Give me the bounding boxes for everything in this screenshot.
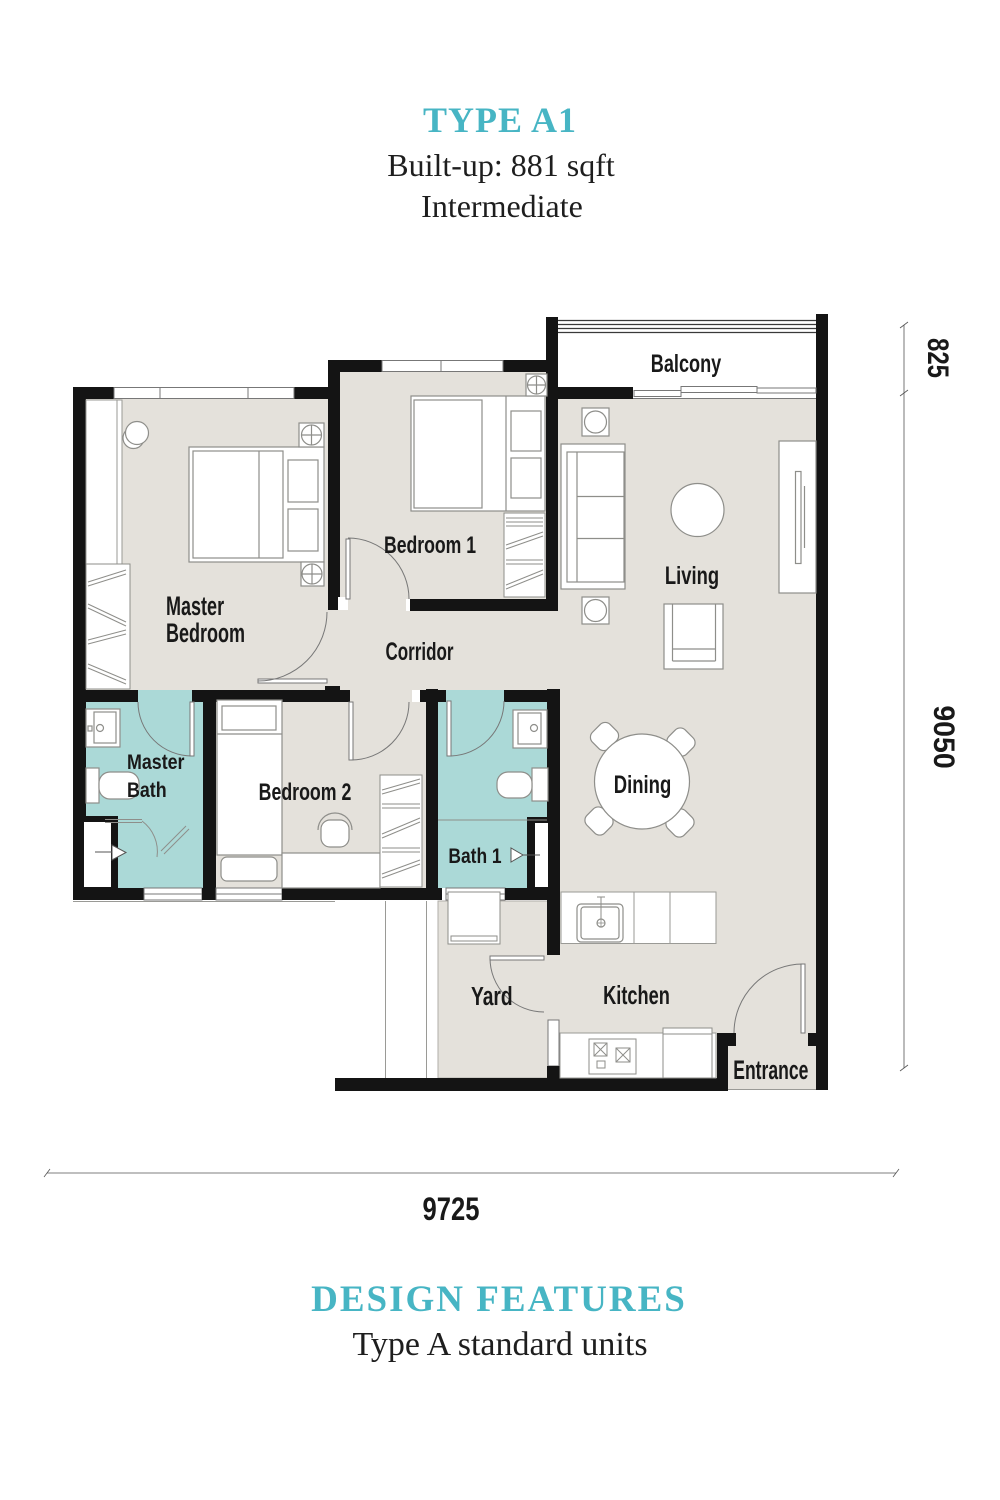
- svg-text:Intermediate: Intermediate: [421, 188, 583, 224]
- svg-text:825: 825: [921, 338, 955, 378]
- svg-text:Balcony: Balcony: [651, 349, 722, 378]
- svg-text:Bath: Bath: [127, 779, 167, 803]
- svg-text:Built-up: 881 sqft: Built-up: 881 sqft: [387, 147, 615, 183]
- svg-text:Bedroom 1: Bedroom 1: [384, 532, 476, 558]
- svg-text:Corridor: Corridor: [386, 638, 454, 666]
- svg-text:Yard: Yard: [471, 981, 513, 1011]
- svg-text:Master: Master: [166, 590, 224, 620]
- svg-text:DESIGN FEATURES: DESIGN FEATURES: [311, 1279, 687, 1320]
- svg-text:9050: 9050: [927, 705, 960, 768]
- svg-text:Living: Living: [665, 561, 719, 589]
- svg-text:9725: 9725: [423, 1192, 480, 1227]
- svg-text:Bedroom 2: Bedroom 2: [259, 780, 352, 806]
- svg-text:Entrance: Entrance: [733, 1054, 808, 1085]
- svg-text:Type A standard units: Type A standard units: [352, 1326, 647, 1363]
- svg-text:Master: Master: [127, 751, 185, 775]
- svg-text:Bath 1: Bath 1: [448, 846, 501, 869]
- svg-text:Bedroom: Bedroom: [166, 617, 245, 647]
- svg-text:Dining: Dining: [614, 770, 672, 798]
- svg-text:TYPE A1: TYPE A1: [423, 100, 577, 140]
- svg-text:Kitchen: Kitchen: [603, 981, 670, 1010]
